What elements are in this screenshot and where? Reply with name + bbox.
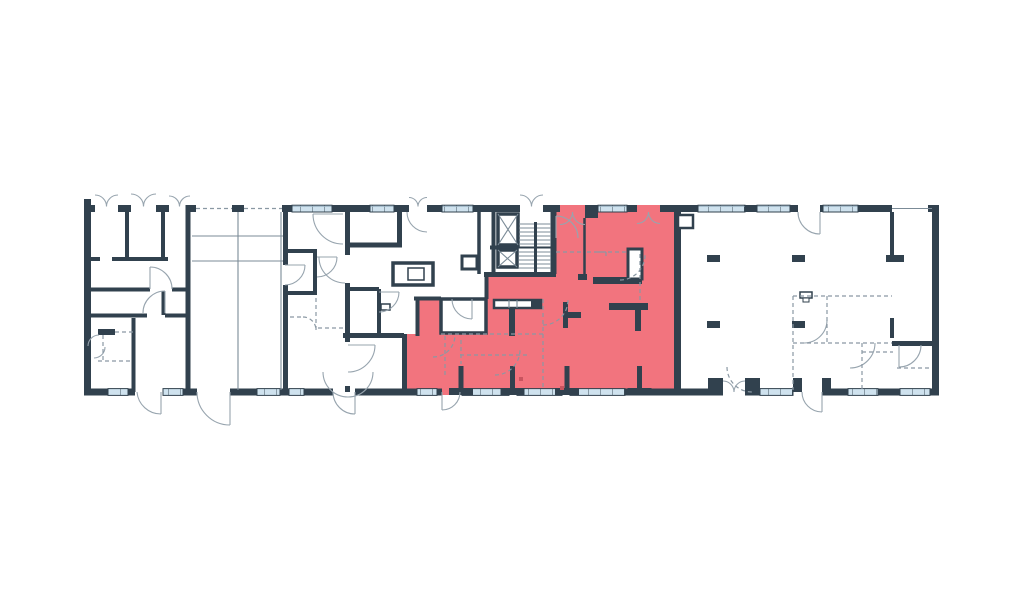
floor-marker [519,377,523,381]
table-symbol [800,292,812,298]
bathroom-pod [393,263,433,285]
column [792,321,805,328]
column [792,255,805,262]
wardrobe-wall [609,303,648,310]
open-space-right [707,212,935,392]
interior-room [441,299,486,333]
door-jamb [822,378,831,392]
chair-symbol [803,298,809,302]
floor-plan-canvas [0,0,1024,603]
shaft-box [462,256,477,269]
corner-pier [84,199,91,208]
column [707,321,720,328]
partition-stub [563,302,568,328]
floor-marker [560,386,564,390]
door-jamb [745,378,760,392]
closet-shelf [98,329,115,335]
left-apartment-walls [84,205,188,392]
facade-pier [585,205,598,218]
floor-plan-page [0,0,1024,603]
entrance-hall [192,209,283,391]
facade-niche [678,215,693,228]
door-jamb [793,378,802,392]
column [707,255,720,262]
elevator-shafts [479,212,518,274]
wall-stub [886,255,904,262]
door-jamb [708,378,723,392]
